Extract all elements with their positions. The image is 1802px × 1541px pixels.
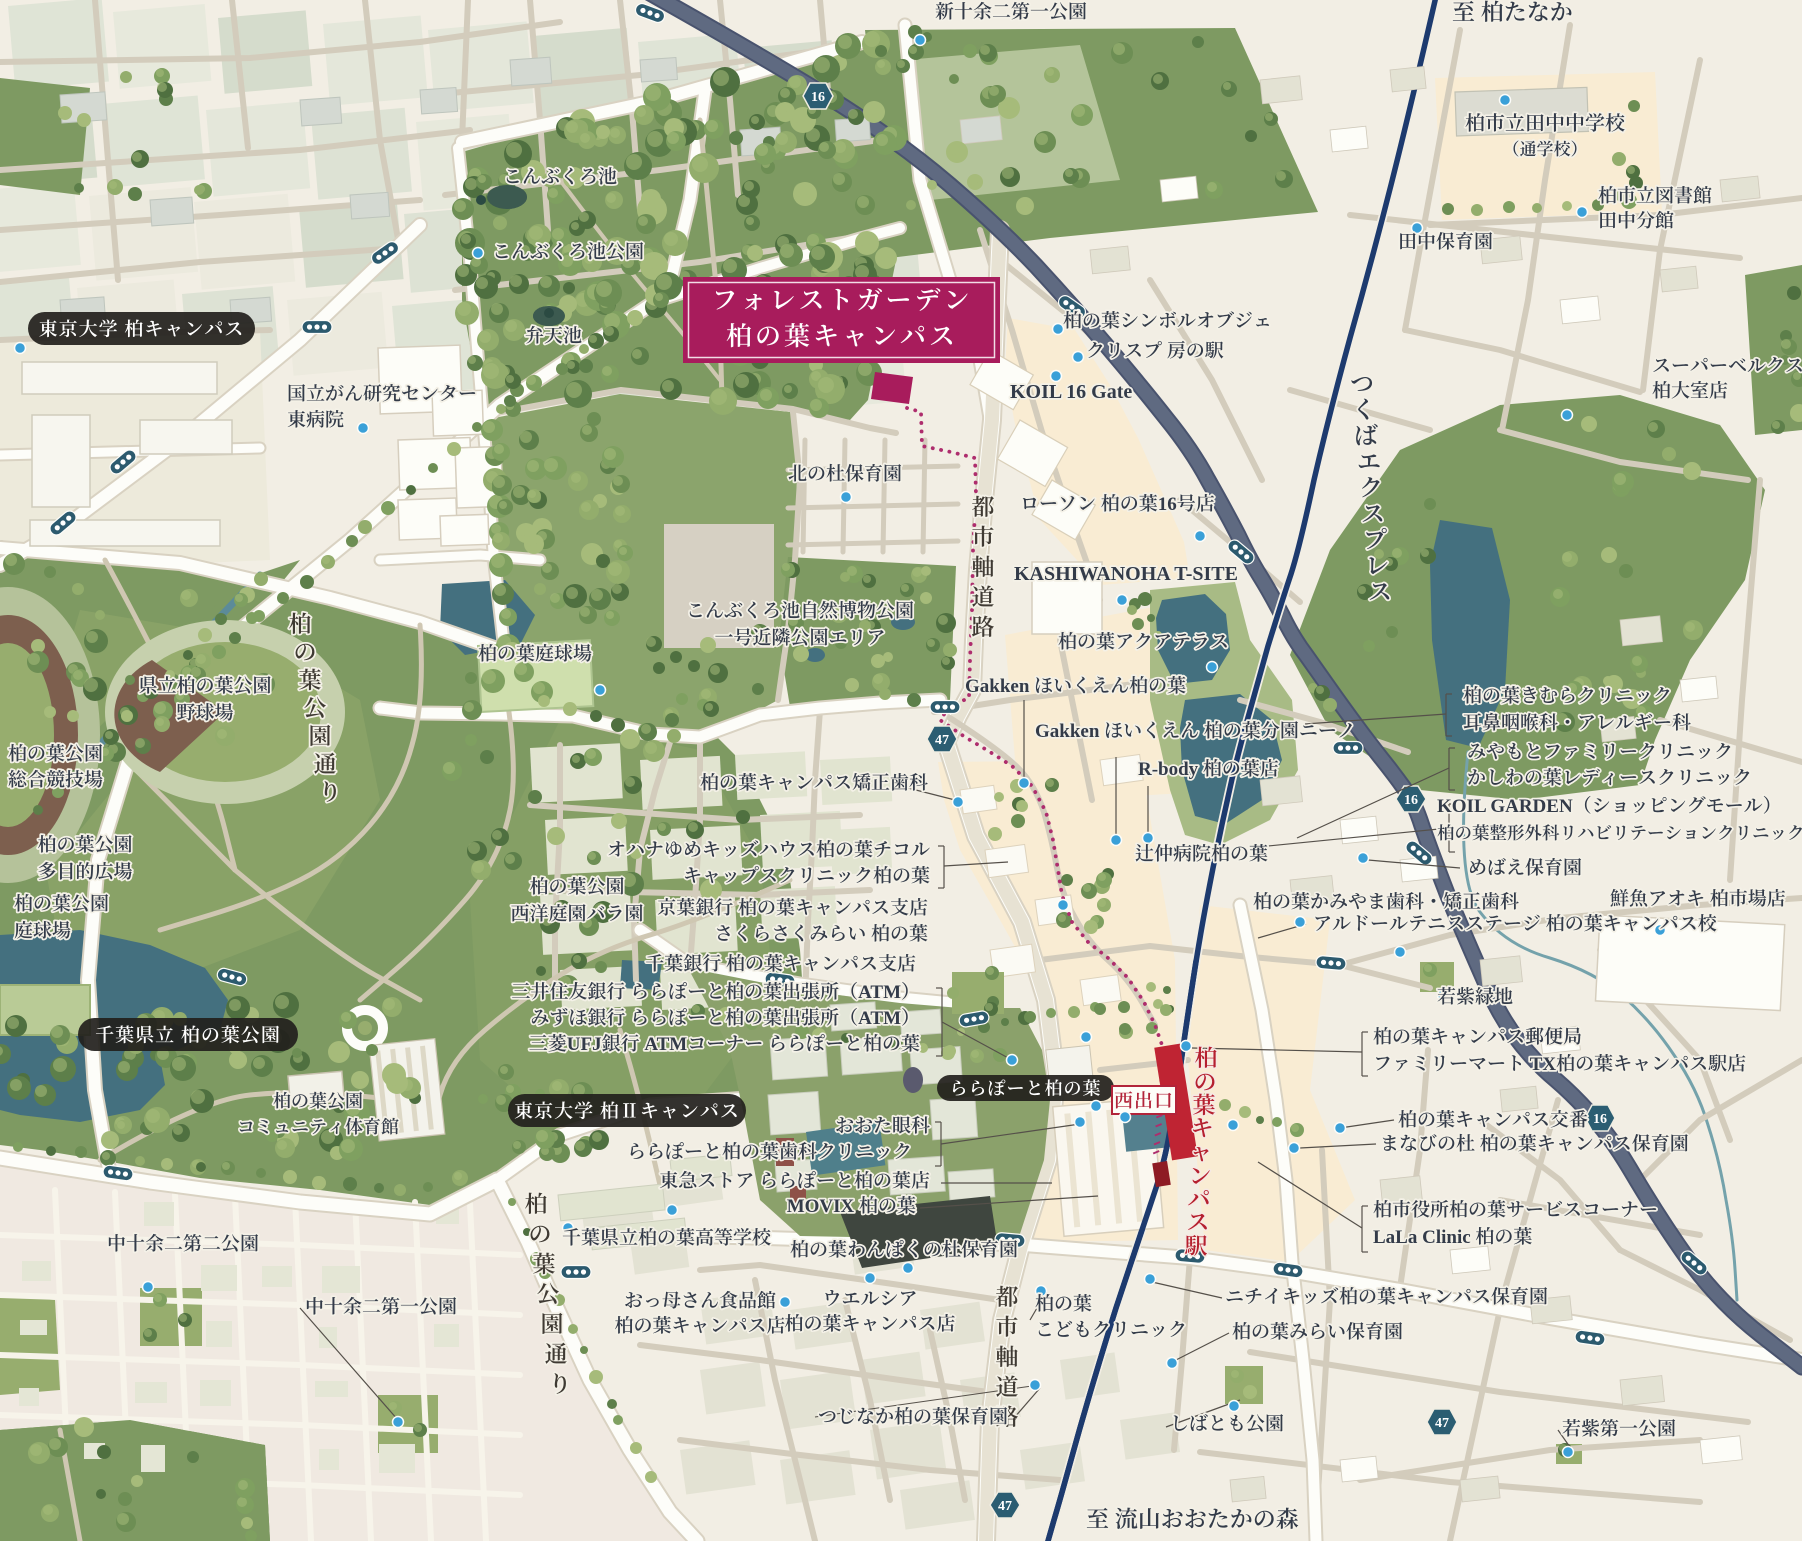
svg-text:千葉県立柏の葉高等学校: 千葉県立柏の葉高等学校 <box>562 1227 771 1249</box>
svg-text:柏市立図書館: 柏市立図書館 <box>1598 185 1712 207</box>
svg-text:フォレストガーデン: フォレストガーデン <box>711 286 972 315</box>
svg-text:ウエルシア: ウエルシア <box>822 1289 917 1310</box>
svg-text:北の杜保育園: 北の杜保育園 <box>788 463 902 485</box>
svg-text:三菱UFJ銀行 ATMコーナー ららぽーと柏の葉: 三菱UFJ銀行 ATMコーナー ららぽーと柏の葉 <box>529 1033 920 1055</box>
svg-text:田中保育園: 田中保育園 <box>1398 231 1493 253</box>
svg-text:スーパーベルクス: スーパーベルクス <box>1652 356 1802 377</box>
svg-text:柏大室店: 柏大室店 <box>1652 380 1728 402</box>
svg-text:KASHIWANOHA T-SITE: KASHIWANOHA T-SITE <box>1014 563 1238 585</box>
svg-text:47: 47 <box>1435 1416 1449 1431</box>
svg-text:柏の葉キャンパス郵便局: 柏の葉キャンパス郵便局 <box>1373 1026 1582 1048</box>
svg-text:り: り <box>549 1372 572 1397</box>
svg-text:り: り <box>319 780 342 805</box>
svg-text:キ: キ <box>1191 1116 1214 1141</box>
svg-text:中十余二第一公園: 中十余二第一公園 <box>305 1296 457 1318</box>
svg-text:県立柏の葉公園: 県立柏の葉公園 <box>138 675 271 697</box>
svg-text:しばとも公園: しばとも公園 <box>1170 1413 1284 1435</box>
svg-text:鮮魚アオキ 柏市場店: 鮮魚アオキ 柏市場店 <box>1610 888 1786 910</box>
svg-text:おおた眼科: おおた眼科 <box>835 1116 930 1137</box>
svg-text:みずほ銀行 ららぽーと柏の葉出張所（ATM）: みずほ銀行 ららぽーと柏の葉出張所（ATM） <box>530 1007 920 1029</box>
svg-text:まなびの杜 柏の葉キャンパス保育園: まなびの杜 柏の葉キャンパス保育園 <box>1380 1133 1689 1155</box>
svg-text:KOIL 16 Gate: KOIL 16 Gate <box>1010 381 1132 403</box>
svg-text:こんぶくろ池: こんぶくろ池 <box>503 167 617 188</box>
svg-text:東急ストア ららぽーと柏の葉店: 東急ストア ららぽーと柏の葉店 <box>659 1170 930 1192</box>
svg-text:柏の葉みらい保育園: 柏の葉みらい保育園 <box>1232 1321 1403 1343</box>
svg-text:田中分館: 田中分館 <box>1598 210 1674 232</box>
svg-text:柏の葉キャンパス矯正歯科: 柏の葉キャンパス矯正歯科 <box>700 772 928 794</box>
svg-text:若紫緑地: 若紫緑地 <box>1437 986 1513 1008</box>
svg-text:柏の葉公園: 柏の葉公園 <box>14 893 109 915</box>
svg-text:ス: ス <box>1361 502 1385 528</box>
svg-text:通: 通 <box>314 752 337 777</box>
svg-text:ば: ば <box>1354 423 1378 450</box>
svg-text:パ: パ <box>1188 1187 1211 1212</box>
svg-text:柏の葉わんぱくの杜保育園: 柏の葉わんぱくの杜保育園 <box>790 1239 1018 1261</box>
svg-text:レ: レ <box>1365 554 1389 580</box>
svg-text:ス: ス <box>1187 1210 1210 1235</box>
svg-text:みやもとファミリークリニック: みやもとファミリークリニック <box>1467 742 1733 763</box>
svg-text:道: 道 <box>972 585 995 610</box>
svg-text:柏: 柏 <box>289 612 312 637</box>
svg-text:国立がん研究センター: 国立がん研究センター <box>287 383 477 405</box>
svg-text:至 柏たなか: 至 柏たなか <box>1452 0 1573 25</box>
svg-text:つじなか柏の葉保育園: つじなか柏の葉保育園 <box>818 1406 1008 1428</box>
svg-text:東病院: 東病院 <box>287 409 344 431</box>
svg-text:の: の <box>529 1222 552 1247</box>
svg-text:市: 市 <box>996 1315 1019 1340</box>
svg-text:ニチイキッズ柏の葉キャンパス保育園: ニチイキッズ柏の葉キャンパス保育園 <box>1225 1286 1548 1308</box>
svg-text:三井住友銀行 ららぽーと柏の葉出張所（ATM）: 三井住友銀行 ららぽーと柏の葉出張所（ATM） <box>511 981 920 1003</box>
svg-text:公: 公 <box>304 696 327 721</box>
svg-text:16: 16 <box>1593 1112 1607 1127</box>
svg-text:16: 16 <box>811 90 825 105</box>
svg-text:47: 47 <box>998 1499 1012 1514</box>
svg-text:千葉銀行 柏の葉キャンパス支店: 千葉銀行 柏の葉キャンパス支店 <box>645 953 916 975</box>
svg-text:野球場: 野球場 <box>176 703 233 724</box>
svg-text:公: 公 <box>537 1282 560 1307</box>
svg-text:おっ母さん食品館: おっ母さん食品館 <box>624 1290 776 1312</box>
svg-text:こんぶくろ池自然博物公園: こんぶくろ池自然博物公園 <box>686 600 914 622</box>
svg-text:柏: 柏 <box>525 1192 548 1217</box>
svg-text:ローソン 柏の葉16号店: ローソン 柏の葉16号店 <box>1020 493 1215 515</box>
svg-text:柏の葉かみやま歯科・矯正歯科: 柏の葉かみやま歯科・矯正歯科 <box>1253 891 1519 913</box>
svg-text:柏の葉キャンパス店: 柏の葉キャンパス店 <box>784 1313 955 1335</box>
svg-text:さくらさくみらい 柏の葉: さくらさくみらい 柏の葉 <box>714 923 928 945</box>
svg-text:都: 都 <box>996 1285 1019 1310</box>
svg-text:東京大学 柏Ⅱキャンパス: 東京大学 柏Ⅱキャンパス <box>514 1100 740 1122</box>
svg-text:葉: 葉 <box>1193 1093 1216 1118</box>
svg-text:16: 16 <box>1404 793 1418 808</box>
svg-text:つ: つ <box>1350 372 1374 398</box>
svg-text:柏の葉公園: 柏の葉公園 <box>529 876 624 898</box>
svg-text:柏の葉きむらクリニック: 柏の葉きむらクリニック <box>1463 685 1672 707</box>
svg-text:こどもクリニック: こどもクリニック <box>1035 1320 1187 1341</box>
svg-text:柏の葉公園: 柏の葉公園 <box>273 1091 363 1111</box>
svg-text:京葉銀行 柏の葉キャンパス支店: 京葉銀行 柏の葉キャンパス支店 <box>657 897 928 919</box>
svg-text:アルドールテニスステージ 柏の葉キャンパス校: アルドールテニスステージ 柏の葉キャンパス校 <box>1313 913 1717 935</box>
svg-text:弁天池: 弁天池 <box>525 325 582 347</box>
svg-text:柏: 柏 <box>1195 1046 1218 1071</box>
svg-text:都: 都 <box>972 495 995 520</box>
svg-text:中十余二第二公園: 中十余二第二公園 <box>107 1233 259 1255</box>
svg-text:R-body 柏の葉店: R-body 柏の葉店 <box>1138 758 1279 780</box>
svg-text:千葉県立 柏の葉公園: 千葉県立 柏の葉公園 <box>95 1024 281 1046</box>
svg-text:こんぶくろ池公園: こんぶくろ池公園 <box>492 242 644 263</box>
svg-text:ららぽーと柏の葉歯科クリニック: ららぽーと柏の葉歯科クリニック <box>627 1141 912 1163</box>
svg-text:耳鼻咽喉科・アレルギー科: 耳鼻咽喉科・アレルギー科 <box>1463 712 1691 734</box>
svg-text:柏の葉キャンパス交番: 柏の葉キャンパス交番 <box>1398 1109 1588 1131</box>
svg-text:コミュニティ体育館: コミュニティ体育館 <box>237 1117 399 1137</box>
svg-text:市: 市 <box>972 525 995 550</box>
svg-text:柏の葉公園: 柏の葉公園 <box>37 834 132 856</box>
svg-text:柏の葉庭球場: 柏の葉庭球場 <box>478 643 592 665</box>
svg-text:園: 園 <box>309 724 332 749</box>
svg-text:47: 47 <box>935 733 949 748</box>
svg-text:クリスプ 房の駅: クリスプ 房の駅 <box>1086 340 1224 362</box>
svg-text:柏市役所柏の葉サービスコーナー: 柏市役所柏の葉サービスコーナー <box>1373 1199 1658 1221</box>
svg-text:キャップスクリニック柏の葉: キャップスクリニック柏の葉 <box>683 865 930 887</box>
svg-text:プ: プ <box>1363 527 1387 554</box>
svg-text:MOVIX 柏の葉: MOVIX 柏の葉 <box>787 1195 916 1217</box>
svg-text:柏の葉: 柏の葉 <box>1035 1293 1092 1315</box>
svg-text:ファミリーマート TX柏の葉キャンパス駅店: ファミリーマート TX柏の葉キャンパス駅店 <box>1373 1053 1746 1075</box>
svg-text:道: 道 <box>996 1375 1019 1400</box>
svg-text:軸: 軸 <box>972 555 995 580</box>
svg-text:多目的広場: 多目的広場 <box>37 861 132 883</box>
svg-text:駅: 駅 <box>1185 1234 1208 1259</box>
svg-text:Gakken ほいくえん柏の葉: Gakken ほいくえん柏の葉 <box>965 675 1186 697</box>
svg-text:園: 園 <box>541 1312 564 1337</box>
svg-text:KOIL GARDEN（ショッピングモール）: KOIL GARDEN（ショッピングモール） <box>1437 795 1782 817</box>
svg-text:ン: ン <box>1189 1164 1212 1189</box>
svg-text:の: の <box>294 640 317 665</box>
svg-text:葉: 葉 <box>533 1252 556 1277</box>
svg-text:西洋庭園バラ園: 西洋庭園バラ園 <box>510 903 643 925</box>
svg-text:く: く <box>1352 398 1376 424</box>
svg-text:一号近隣公園エリア: 一号近隣公園エリア <box>714 627 885 649</box>
svg-text:オハナゆめキッズハウス柏の葉チコル: オハナゆめキッズハウス柏の葉チコル <box>607 839 930 861</box>
svg-text:若紫第一公園: 若紫第一公園 <box>1562 1418 1676 1440</box>
svg-text:柏の葉アクアテラス: 柏の葉アクアテラス <box>1058 631 1229 653</box>
svg-text:ららぽーと柏の葉: ららぽーと柏の葉 <box>950 1078 1102 1098</box>
svg-text:柏市立田中中学校: 柏市立田中中学校 <box>1465 113 1625 135</box>
svg-text:ク: ク <box>1359 476 1383 502</box>
svg-text:ャ: ャ <box>1190 1140 1213 1165</box>
svg-text:庭球場: 庭球場 <box>14 920 71 942</box>
svg-text:葉: 葉 <box>299 668 322 693</box>
svg-text:東京大学 柏キャンパス: 東京大学 柏キャンパス <box>39 318 245 340</box>
svg-text:軸: 軸 <box>996 1345 1019 1370</box>
svg-text:LaLa Clinic 柏の葉: LaLa Clinic 柏の葉 <box>1373 1226 1532 1248</box>
svg-text:かしわの葉レディースクリニック: かしわの葉レディースクリニック <box>1467 767 1752 789</box>
svg-text:柏の葉キャンパス: 柏の葉キャンパス <box>726 322 958 351</box>
svg-text:通: 通 <box>545 1342 568 1367</box>
svg-text:路: 路 <box>972 615 995 640</box>
svg-text:ス: ス <box>1368 580 1392 606</box>
svg-text:新十余二第一公園: 新十余二第一公園 <box>935 1 1087 23</box>
svg-text:総合競技場: 総合競技場 <box>8 769 103 791</box>
svg-text:柏の葉公園: 柏の葉公園 <box>8 743 103 765</box>
svg-text:柏の葉シンボルオブジェ: 柏の葉シンボルオブジェ <box>1063 310 1272 332</box>
svg-text:辻仲病院柏の葉: 辻仲病院柏の葉 <box>1135 843 1268 865</box>
svg-text:の: の <box>1194 1070 1217 1095</box>
svg-text:めばえ保育園: めばえ保育園 <box>1468 857 1582 879</box>
svg-text:エ: エ <box>1357 450 1381 476</box>
svg-text:（通学校）: （通学校） <box>1503 140 1588 159</box>
svg-text:柏の葉キャンパス店: 柏の葉キャンパス店 <box>614 1315 785 1337</box>
svg-text:西出口: 西出口 <box>1114 1091 1174 1112</box>
svg-text:柏の葉整形外科リハビリテーションクリニック: 柏の葉整形外科リハビリテーションクリニック <box>1437 823 1802 843</box>
svg-text:Gakken ほいくえん 柏の葉分園ニーノ: Gakken ほいくえん 柏の葉分園ニーノ <box>1035 720 1356 742</box>
svg-text:至 流山おおたかの森: 至 流山おおたかの森 <box>1086 1507 1299 1532</box>
